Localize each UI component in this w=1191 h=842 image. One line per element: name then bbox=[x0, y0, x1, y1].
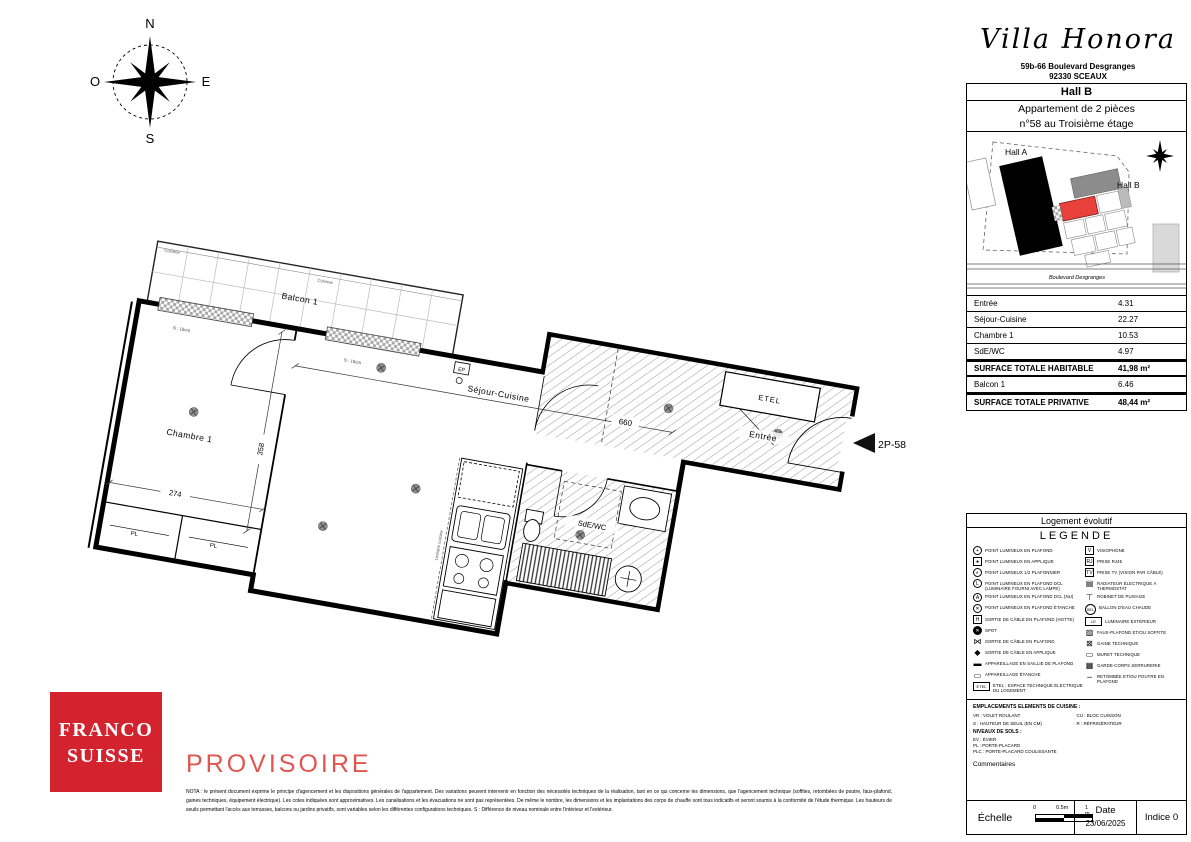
total-private-row: SURFACE TOTALE PRIVATIVE 48,44 m² bbox=[967, 393, 1186, 410]
hall-a-building bbox=[999, 156, 1063, 256]
legend-item: BELBallon d'eau chaude bbox=[1085, 604, 1182, 615]
legend-item: ✕Spot bbox=[973, 626, 1085, 635]
areas-rows: Entrée4.31Séjour-Cuisine22.27Chambre 110… bbox=[967, 296, 1186, 360]
legend-item: ╌Retombée et/ou poutre en plafond bbox=[1085, 673, 1182, 685]
kitchen-legend-right: R : Réfrigérateur bbox=[1077, 721, 1181, 726]
area-row-value: 4.97 bbox=[1118, 347, 1186, 356]
site-plan: Hall A bbox=[967, 132, 1186, 296]
unit-number: 2P-58 bbox=[878, 439, 906, 451]
total-habitable-label: SURFACE TOTALE HABITABLE bbox=[967, 364, 1118, 373]
half-ceiling-light-icon: ◐ bbox=[973, 568, 982, 577]
address-line-1: 59b-66 Boulevard Desgranges bbox=[965, 62, 1191, 72]
area-row-label: Chambre 1 bbox=[967, 331, 1118, 340]
scale-bar: 0 0.5m 1 m bbox=[1023, 801, 1074, 834]
tv-outlet-icon: TV bbox=[1085, 568, 1094, 577]
legend-item-label: Spot bbox=[985, 626, 997, 633]
info-box: Hall B Appartement de 2 pièces n°58 au T… bbox=[966, 83, 1187, 411]
project-address: 59b-66 Boulevard Desgranges 92330 SCEAUX bbox=[965, 62, 1191, 82]
provisional-stamp: PROVISOIRE bbox=[186, 750, 372, 779]
total-private-label: SURFACE TOTALE PRIVATIVE bbox=[967, 398, 1118, 407]
kitchen-legend-row: VR : Volet roulantCU : Bloc cuisson bbox=[973, 713, 1180, 718]
legend-item: ⋈Sortie de câble en plafond bbox=[973, 637, 1085, 646]
legend-item-label: Sortie de câble en plafond bbox=[985, 637, 1055, 644]
wall-light-icon: ● bbox=[973, 557, 982, 566]
unit-marker-arrow-icon bbox=[853, 433, 875, 453]
legend-item: ◆Sortie de câble en applique bbox=[973, 648, 1085, 657]
area-row-value: 4.31 bbox=[1118, 299, 1186, 308]
area-row: Entrée4.31 bbox=[967, 296, 1186, 312]
title-block-footer: Échelle 0 0.5m 1 m Date 23/06/2025 Indic… bbox=[967, 800, 1186, 834]
legend-item-label: Prise TV (vision par câble) bbox=[1097, 568, 1163, 575]
address-line-2: 92330 SCEAUX bbox=[965, 72, 1191, 82]
legend-item-label: Muret technique bbox=[1097, 650, 1140, 657]
legend-item: VVisiophone bbox=[1085, 546, 1182, 555]
kitchen-legend-right: CU : Bloc cuisson bbox=[1077, 713, 1181, 718]
legend-item-label: Point lumineux en plafond étanche bbox=[985, 604, 1075, 611]
spot-icon: ✕ bbox=[973, 626, 982, 635]
sealed-ceiling-light-icon: ✕ bbox=[973, 604, 982, 613]
kitchen-section-title: EMPLACEMENTS ELEMENTS DE CUISINE : bbox=[973, 704, 1180, 710]
legend-item-label: Ballon d'eau chaude bbox=[1099, 604, 1151, 611]
scale-bar-graphic bbox=[1035, 814, 1093, 822]
legend-item-label: Visiophone bbox=[1097, 546, 1125, 553]
legend-item: LELuminaire extérieur bbox=[1085, 617, 1182, 626]
legend-item: ▦Garde-corps serrurerie bbox=[1085, 661, 1182, 670]
hall-b-label: Hall B bbox=[1117, 180, 1140, 190]
rj45-outlet-icon: RJ bbox=[1085, 557, 1094, 566]
levels-title: NIVEAUX DE SOLS : bbox=[973, 729, 1180, 735]
unit-marker: 2P-58 bbox=[853, 433, 906, 453]
legend-item-label: Point lumineux 1/2 plafonnier bbox=[985, 568, 1060, 575]
compass-south-label: S bbox=[146, 131, 155, 144]
nota-disclaimer: NOTA : le présent document exprime le pr… bbox=[186, 788, 892, 815]
surface-apparatus-icon: ▬ bbox=[973, 659, 982, 668]
area-row-label: Séjour-Cuisine bbox=[967, 315, 1118, 324]
legend-item-label: Luminaire extérieur bbox=[1105, 617, 1156, 624]
hall-name: Hall B bbox=[967, 84, 1186, 101]
logo-line-2: SUISSE bbox=[50, 743, 162, 769]
legend-item: ▭Appareillage étanche bbox=[973, 671, 1085, 680]
sealed-apparatus-icon: ▭ bbox=[973, 671, 982, 680]
apartment-line-1: Appartement de 2 pièces bbox=[967, 102, 1186, 117]
legend-item: ◐Point lumineux 1/2 plafonnier bbox=[973, 568, 1085, 577]
kitchen-legend-left: S : Hauteur de seuil (en cm) bbox=[973, 721, 1077, 726]
legend-box: Logement évolutif LEGENDE +Point lumineu… bbox=[966, 513, 1187, 835]
franco-suisse-logo: FRANCO SUISSE bbox=[50, 692, 162, 792]
railing-icon: ▦ bbox=[1085, 661, 1094, 670]
area-row-label: Entrée bbox=[967, 299, 1118, 308]
legend-right-column: VVisiophoneRJPrise RJ45TVPrise TV (visio… bbox=[1085, 546, 1182, 695]
legend-item: LPoint lumineux en plafond DCL (luminair… bbox=[973, 579, 1085, 591]
legend-item: ●Point lumineux en applique bbox=[973, 557, 1085, 566]
wall-cable-outlet-icon: ◆ bbox=[973, 648, 982, 657]
area-row-label: SdE/WC bbox=[967, 347, 1118, 356]
legend-item-label: Gaine technique bbox=[1097, 639, 1138, 646]
visiophone-icon: V bbox=[1085, 546, 1094, 555]
apartment-line-2: n°58 au Troisième étage bbox=[967, 117, 1186, 132]
apartment-floor-plan: Balcon 1 Colonne Colonne S : 15cm S : 15… bbox=[55, 190, 935, 670]
legend-item-label: ETEL : espace technique électrique du lo… bbox=[993, 682, 1085, 694]
duct-icon: ⊠ bbox=[1085, 639, 1094, 648]
area-row-value: 10.53 bbox=[1118, 331, 1186, 340]
water-heater-icon: BEL bbox=[1085, 604, 1096, 615]
legend-item-label: Appareillage en saillie de plafond bbox=[985, 659, 1073, 666]
legend-columns: +Point lumineux en plafond●Point lumineu… bbox=[967, 544, 1186, 695]
radiator-icon: ▤ bbox=[1085, 579, 1094, 588]
legend-item-label: Prise RJ45 bbox=[1097, 557, 1122, 564]
ceiling-light-icon: + bbox=[973, 546, 982, 555]
legend-item: APoint lumineux en plafond DCL (nu) bbox=[973, 593, 1085, 602]
legend-item: ✕Point lumineux en plafond étanche bbox=[973, 604, 1085, 613]
total-habitable-row: SURFACE TOTALE HABITABLE 41,98 m² bbox=[967, 360, 1186, 377]
balcony-row-value: 6.46 bbox=[1118, 380, 1186, 389]
dcl-ceiling-light-icon: L bbox=[973, 579, 982, 588]
area-row-value: 22.27 bbox=[1118, 315, 1186, 324]
balcony-row-label: Balcon 1 bbox=[967, 380, 1118, 389]
legend-item-label: Faux-plafond et/ou soffite bbox=[1097, 628, 1166, 635]
legend-item-label: Appareillage étanche bbox=[985, 671, 1041, 678]
legend-item-label: Point lumineux en applique bbox=[985, 557, 1054, 564]
compass-north-label: N bbox=[145, 16, 154, 31]
hood-cable-outlet-icon: H bbox=[973, 615, 982, 624]
logo-line-1: FRANCO bbox=[50, 717, 162, 743]
legend-item: TVPrise TV (vision par câble) bbox=[1085, 568, 1182, 577]
legend-item: RJPrise RJ45 bbox=[1085, 557, 1182, 566]
legend-item-label: Garde-corps serrurerie bbox=[1097, 661, 1161, 668]
legend-item: +Point lumineux en plafond bbox=[973, 546, 1085, 555]
street-label: Boulevard Desgranges bbox=[1049, 275, 1105, 281]
legend-item-label: Point lumineux en plafond DCL (nu) bbox=[985, 593, 1073, 600]
apartment-title: Appartement de 2 pièces n°58 au Troisièm… bbox=[967, 101, 1186, 132]
legend-left-column: +Point lumineux en plafond●Point lumineu… bbox=[973, 546, 1085, 695]
legend-item-label: Robinet de puisage bbox=[1097, 593, 1145, 600]
kitchen-legend-row: S : Hauteur de seuil (en cm)R : Réfrigér… bbox=[973, 721, 1180, 726]
comments-label: Commentaires bbox=[967, 755, 1186, 768]
legend-item-label: Retombée et/ou poutre en plafond bbox=[1097, 673, 1182, 685]
hall-a-label: Hall A bbox=[1005, 147, 1028, 157]
balcony-row: Balcon 1 6.46 bbox=[967, 377, 1186, 393]
total-private-value: 48,44 m² bbox=[1118, 398, 1186, 407]
exterior-light-icon: LE bbox=[1085, 617, 1102, 626]
compass-west-label: O bbox=[90, 74, 100, 89]
legend-title: LEGENDE bbox=[967, 527, 1186, 544]
soffit-icon: ▨ bbox=[1085, 628, 1094, 637]
beam-icon: ╌ bbox=[1085, 673, 1094, 682]
low-wall-icon: ▭ bbox=[1085, 650, 1094, 659]
legend-item: ▨Faux-plafond et/ou soffite bbox=[1085, 628, 1182, 637]
legend-item: ▬Appareillage en saillie de plafond bbox=[973, 659, 1085, 668]
project-title: Villa Honora bbox=[965, 24, 1191, 55]
legend-item: HSortie de câble en plafond (hotte) bbox=[973, 615, 1085, 624]
legend-item: ▤Radiateur électrique à thermostat bbox=[1085, 579, 1182, 591]
revision-index: Indice 0 bbox=[1136, 801, 1186, 834]
legend-item-label: Sortie de câble en plafond (hotte) bbox=[985, 615, 1074, 622]
ceiling-cable-outlet-icon: ⋈ bbox=[973, 637, 982, 646]
legend-item: ⊠Gaine technique bbox=[1085, 639, 1182, 648]
legend-item: ▭Muret technique bbox=[1085, 650, 1182, 659]
water-tap-icon: ⊤ bbox=[1085, 593, 1094, 602]
mini-compass-icon bbox=[1146, 140, 1174, 172]
legend-item-label: Radiateur électrique à thermostat bbox=[1097, 579, 1182, 591]
scale-label: Échelle bbox=[967, 801, 1023, 834]
legend-kitchen-section: EMPLACEMENTS ELEMENTS DE CUISINE : VR : … bbox=[967, 699, 1186, 755]
legend-item-label: Sortie de câble en applique bbox=[985, 648, 1056, 655]
legend-item-label: Point lumineux en plafond DCL (luminaire… bbox=[985, 579, 1085, 591]
total-habitable-value: 41,98 m² bbox=[1118, 364, 1186, 373]
legend-item: ⊤Robinet de puisage bbox=[1085, 593, 1182, 602]
legend-item: ETELETEL : espace technique électrique d… bbox=[973, 682, 1085, 694]
area-row: Chambre 110.53 bbox=[967, 328, 1186, 344]
legend-box-title: Logement évolutif bbox=[966, 513, 1187, 528]
legend-item-label: Point lumineux en plafond bbox=[985, 546, 1053, 553]
scale-tick-05m: 0.5m bbox=[1056, 805, 1068, 811]
etel-box-icon: ETEL bbox=[973, 682, 990, 691]
area-row: SdE/WC4.97 bbox=[967, 344, 1186, 360]
floor-plan-sheet: N S E O bbox=[0, 0, 1191, 842]
compass-east-label: E bbox=[202, 74, 211, 89]
dcl-bare-light-icon: A bbox=[973, 593, 982, 602]
areas-table: Entrée4.31Séjour-Cuisine22.27Chambre 110… bbox=[967, 296, 1186, 410]
kitchen-legend-left: VR : Volet roulant bbox=[973, 713, 1077, 718]
area-row: Séjour-Cuisine22.27 bbox=[967, 312, 1186, 328]
scale-tick-0: 0 bbox=[1033, 805, 1036, 811]
compass-rose: N S E O bbox=[90, 12, 214, 144]
